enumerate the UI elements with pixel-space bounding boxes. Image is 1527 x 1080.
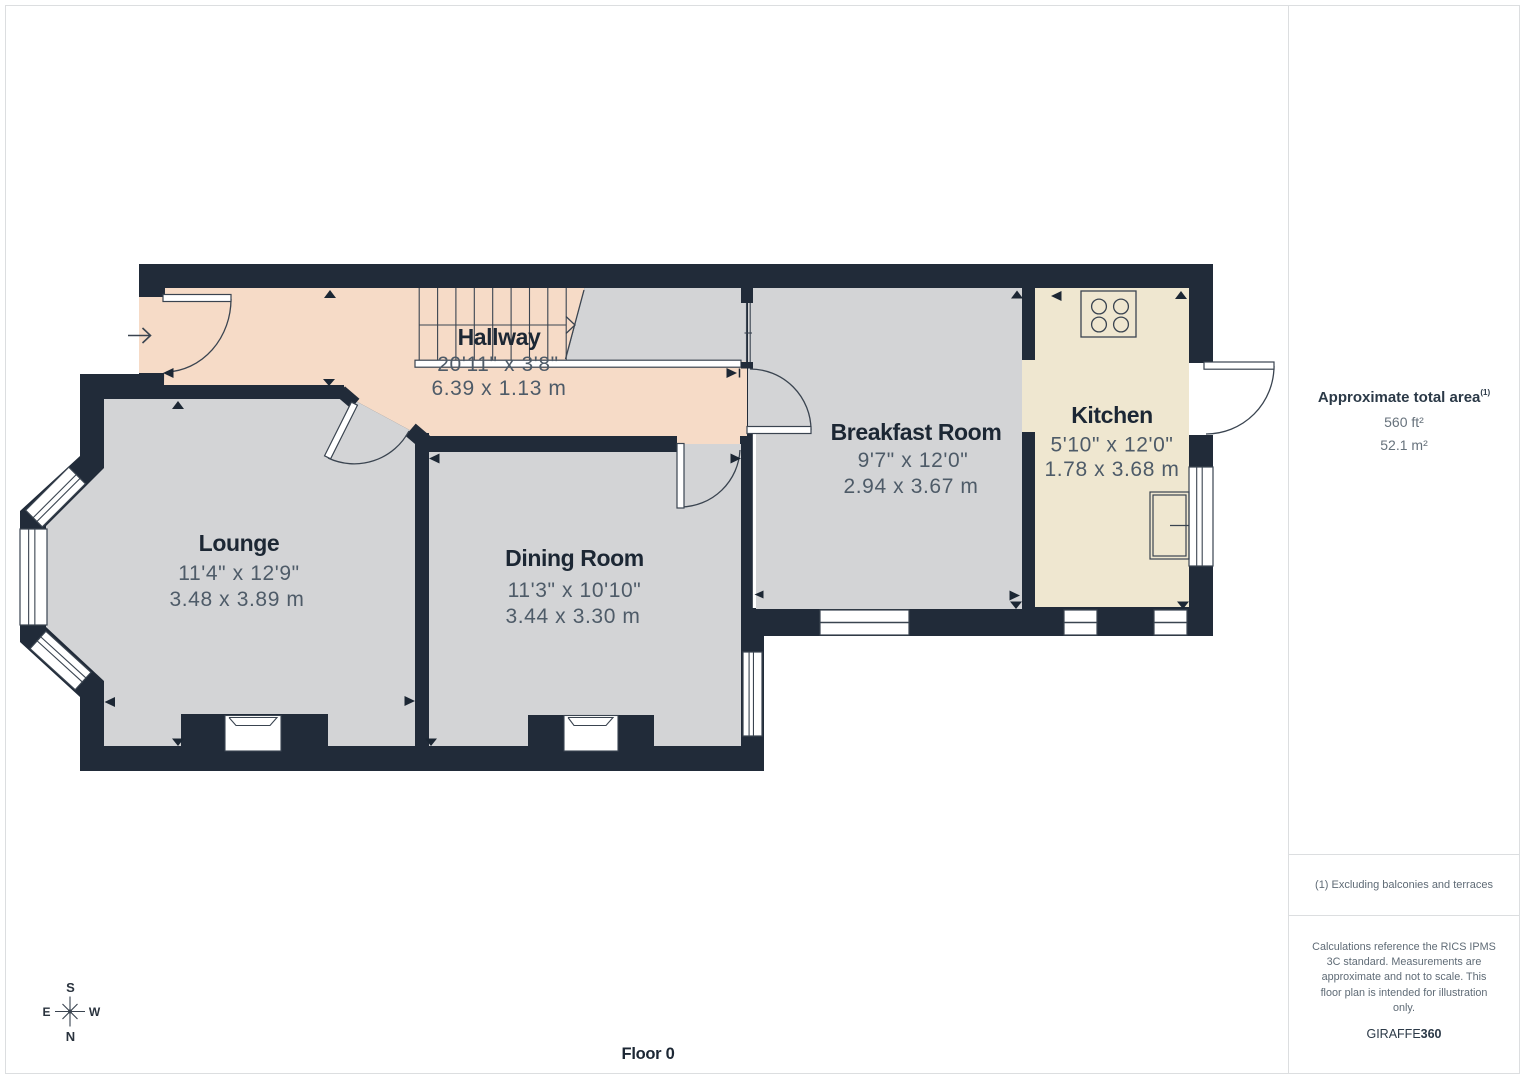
svg-text:W: W bbox=[89, 1005, 101, 1019]
svg-text:Lounge: Lounge bbox=[199, 530, 280, 556]
svg-text:20'11" x 3'8": 20'11" x 3'8" bbox=[437, 353, 558, 376]
svg-text:S: S bbox=[66, 980, 75, 995]
svg-text:Breakfast Room: Breakfast Room bbox=[831, 419, 1002, 445]
svg-text:Kitchen: Kitchen bbox=[1071, 402, 1153, 428]
svg-text:3.44 x 3.30 m: 3.44 x 3.30 m bbox=[505, 605, 640, 628]
svg-text:Dining Room: Dining Room bbox=[505, 545, 644, 571]
svg-text:N: N bbox=[66, 1029, 75, 1044]
svg-text:11'3" x 10'10": 11'3" x 10'10" bbox=[508, 579, 642, 602]
svg-text:1.78 x 3.68 m: 1.78 x 3.68 m bbox=[1044, 458, 1179, 481]
svg-text:6.39 x 1.13 m: 6.39 x 1.13 m bbox=[431, 377, 566, 400]
svg-text:9'7" x 12'0": 9'7" x 12'0" bbox=[858, 449, 969, 472]
svg-text:11'4" x 12'9": 11'4" x 12'9" bbox=[178, 562, 299, 585]
svg-text:E: E bbox=[42, 1005, 50, 1019]
svg-text:5'10" x 12'0": 5'10" x 12'0" bbox=[1051, 434, 1174, 457]
svg-text:2.94 x 3.67 m: 2.94 x 3.67 m bbox=[843, 475, 978, 498]
svg-text:Hallway: Hallway bbox=[458, 324, 541, 350]
svg-text:3.48 x 3.89 m: 3.48 x 3.89 m bbox=[169, 588, 304, 611]
